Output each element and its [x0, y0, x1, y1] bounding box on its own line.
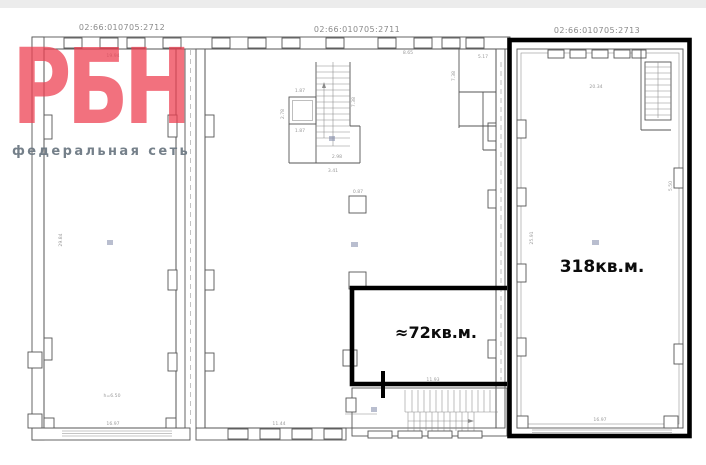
central-staircase	[289, 62, 360, 163]
elevator-shaft	[289, 97, 316, 124]
dimension-label: 19.94	[106, 53, 119, 59]
dimension-label: 16.97	[106, 421, 119, 427]
dimension-label: 20.34	[589, 84, 602, 90]
cadastral-number-right: 02:66:010705:2713	[554, 26, 640, 35]
cadastral-number-left: 02:66:010705:2712	[79, 23, 165, 32]
dimension-label: 8.65	[403, 50, 413, 56]
dimension-label: 11.44	[272, 421, 285, 427]
highlight-right-parcel	[510, 40, 690, 436]
dimension-label: 5.50	[668, 181, 674, 191]
dimension-label: h=6.50	[104, 393, 121, 399]
floor-plan-page: 02:66:010705:2712 02:66:010705:2711 02:6…	[0, 0, 706, 465]
stair-direction-arrow	[322, 82, 326, 88]
dimension-label: 5.17	[478, 54, 488, 60]
cadastral-number-middle: 02:66:010705:2711	[314, 25, 400, 34]
floor-plan-drawing: 02:66:010705:2712 02:66:010705:2711 02:6…	[0, 0, 706, 465]
entrance-direction-arrow	[468, 419, 474, 423]
entrance-stairs	[345, 388, 507, 438]
dimension-label: 7.38	[451, 71, 457, 81]
right-staircase	[641, 49, 671, 130]
dimension-label: 1.87	[295, 88, 305, 94]
dimension-label: 29.84	[58, 233, 64, 246]
dimension-label: 3.41	[328, 168, 338, 174]
dimension-label: 2.78	[280, 109, 286, 119]
cadastral-boundary-lines	[191, 50, 502, 427]
dimension-label: 1.87	[295, 128, 305, 134]
area-label-318: 318кв.м.	[560, 257, 645, 277]
dimension-label: 25.91	[529, 231, 535, 244]
dimension-label: 7.38	[351, 97, 357, 107]
area-label-72: ≈72кв.м.	[395, 323, 477, 342]
dimension-label: 0.87	[353, 189, 363, 195]
dimension-label: 11.93	[426, 377, 439, 383]
dimension-label: 16.97	[593, 417, 606, 423]
dimension-label: 2.98	[332, 154, 342, 160]
dimension-labels: 19.94 8.65 20.34 5.17 1.87 1.87 2.78 7.3…	[58, 50, 674, 427]
